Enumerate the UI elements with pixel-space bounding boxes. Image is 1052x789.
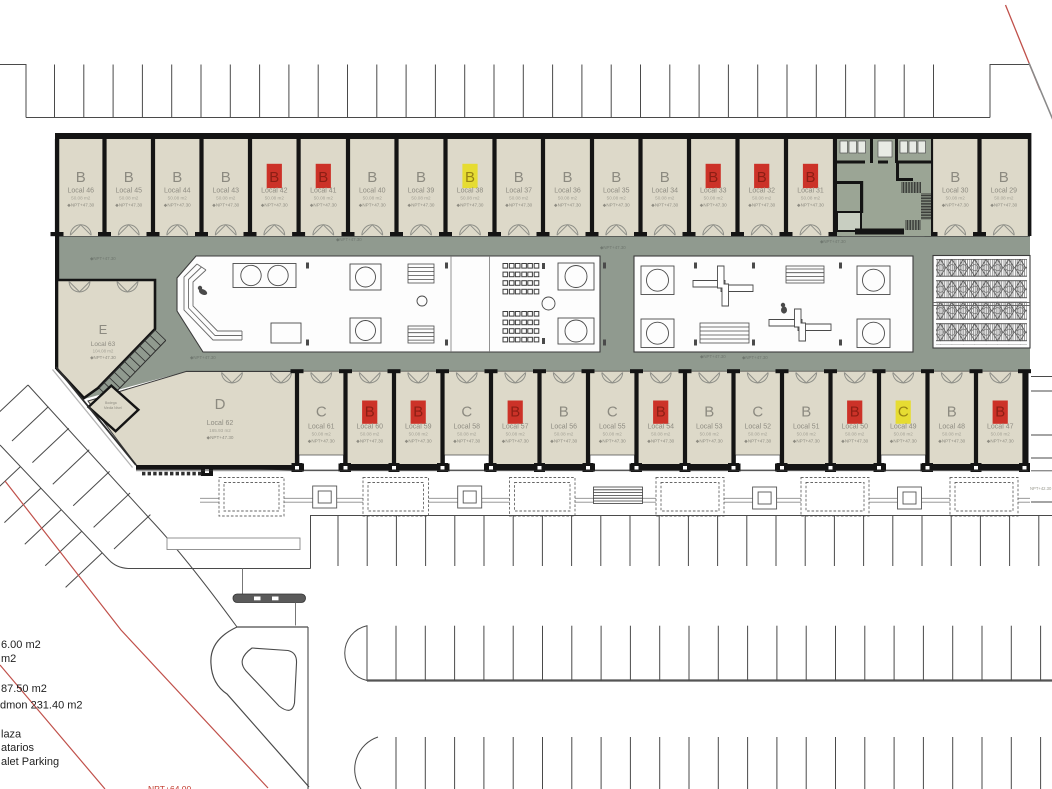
svg-text:B: B	[850, 404, 860, 421]
svg-text:◆NPT+47.30: ◆NPT+47.30	[554, 203, 581, 208]
svg-text:50.08 m2: 50.08 m2	[991, 432, 1011, 437]
svg-text:B: B	[318, 169, 328, 186]
svg-text:50.08 m2: 50.08 m2	[265, 196, 285, 201]
svg-text:◆NPT+47.30: ◆NPT+47.30	[820, 239, 846, 244]
svg-text:B: B	[365, 404, 375, 421]
svg-text:◆NPT+47.30: ◆NPT+47.30	[356, 439, 383, 444]
svg-text:104.08 m2: 104.08 m2	[93, 349, 114, 354]
svg-text:C: C	[316, 404, 327, 421]
svg-text:50.08 m2: 50.08 m2	[71, 196, 91, 201]
svg-text:Local 52: Local 52	[745, 424, 772, 431]
svg-text:B: B	[656, 404, 666, 421]
svg-text:Local 58: Local 58	[454, 424, 481, 431]
svg-text:B: B	[757, 169, 767, 186]
svg-text:Local 53: Local 53	[696, 424, 723, 431]
svg-text:◆NPT+47.30: ◆NPT+47.30	[261, 203, 288, 208]
svg-text:◆NPT+47.30: ◆NPT+47.30	[700, 354, 726, 359]
svg-text:B: B	[221, 169, 231, 186]
svg-text:50.08 m2: 50.08 m2	[168, 196, 188, 201]
svg-text:◆NPT+47.30: ◆NPT+47.30	[336, 237, 362, 242]
svg-text:Local 29: Local 29	[991, 188, 1018, 195]
svg-text:B: B	[413, 404, 423, 421]
svg-text:◆NPT+47.30: ◆NPT+47.30	[938, 439, 965, 444]
svg-text:B: B	[514, 169, 524, 186]
svg-text:◆NPT+47.30: ◆NPT+47.30	[797, 203, 824, 208]
svg-text:◆NPT+47.30: ◆NPT+47.30	[457, 203, 484, 208]
svg-text:50.08 m2: 50.08 m2	[409, 432, 429, 437]
svg-text:◆NPT+47.30: ◆NPT+47.30	[742, 355, 768, 360]
svg-text:B: B	[950, 169, 960, 186]
svg-text:Local 32: Local 32	[749, 188, 776, 195]
svg-text:Local 63: Local 63	[91, 341, 116, 348]
svg-text:◆NPT+47.30: ◆NPT+47.30	[310, 203, 337, 208]
svg-text:◆NPT+47.30: ◆NPT+47.30	[550, 439, 577, 444]
svg-text:50.08 m2: 50.08 m2	[314, 196, 334, 201]
svg-text:◆NPT+47.30: ◆NPT+47.30	[453, 439, 480, 444]
svg-text:165.93 m2: 165.93 m2	[209, 428, 231, 433]
svg-text:B: B	[999, 169, 1009, 186]
svg-text:◆NPT+47.30: ◆NPT+47.30	[748, 203, 775, 208]
svg-text:50.08 m2: 50.08 m2	[942, 432, 962, 437]
svg-text:B: B	[124, 169, 134, 186]
svg-text:E: E	[99, 322, 108, 337]
svg-text:Local 44: Local 44	[164, 188, 191, 195]
svg-text:Local 39: Local 39	[408, 188, 435, 195]
svg-text:50.08 m2: 50.08 m2	[457, 432, 477, 437]
svg-text:Local 46: Local 46	[68, 188, 95, 195]
svg-text:◆NPT+47.30: ◆NPT+47.30	[359, 203, 386, 208]
svg-text:◆NPT+47.30: ◆NPT+47.30	[990, 203, 1017, 208]
svg-text:B: B	[801, 404, 811, 421]
svg-text:Local 34: Local 34	[652, 188, 679, 195]
svg-text:Local 54: Local 54	[648, 424, 675, 431]
svg-text:6.00 m2: 6.00 m2	[1, 639, 41, 651]
svg-text:◆NPT+47.30: ◆NPT+47.30	[987, 439, 1014, 444]
svg-text:50.08 m2: 50.08 m2	[655, 196, 675, 201]
svg-text:Local 35: Local 35	[603, 188, 630, 195]
svg-text:Local 51: Local 51	[793, 424, 820, 431]
svg-text:50.08 m2: 50.08 m2	[558, 196, 578, 201]
svg-text:Local 60: Local 60	[357, 424, 384, 431]
svg-text:Local 55: Local 55	[599, 424, 626, 431]
svg-text:◆NPT+47.30: ◆NPT+47.30	[308, 439, 335, 444]
svg-text:Local 33: Local 33	[700, 188, 727, 195]
svg-text:◆NPT+47.30: ◆NPT+47.30	[408, 203, 435, 208]
svg-text:87.50 m2: 87.50 m2	[1, 683, 47, 695]
svg-text:Local 45: Local 45	[116, 188, 143, 195]
svg-text:◆NPT+47.30: ◆NPT+47.30	[651, 203, 678, 208]
svg-text:Local 59: Local 59	[405, 424, 432, 431]
svg-text:Local 30: Local 30	[942, 188, 969, 195]
svg-text:50.08 m2: 50.08 m2	[845, 432, 865, 437]
svg-text:◆NPT+47.30: ◆NPT+47.30	[90, 256, 116, 261]
svg-text:◆NPT+47.30: ◆NPT+47.30	[164, 203, 191, 208]
svg-text:Local 50: Local 50	[842, 424, 869, 431]
svg-text:◆NPT+47.30: ◆NPT+47.30	[942, 203, 969, 208]
svg-text:Local 38: Local 38	[457, 188, 484, 195]
svg-text:Local 47: Local 47	[987, 424, 1014, 431]
svg-text:B: B	[704, 404, 714, 421]
svg-text:Local 42: Local 42	[261, 188, 288, 195]
svg-text:Local 43: Local 43	[213, 188, 240, 195]
svg-text:B: B	[611, 169, 621, 186]
svg-text:B: B	[416, 169, 426, 186]
svg-text:◆NPT+47.30: ◆NPT+47.30	[841, 439, 868, 444]
svg-text:50.08 m2: 50.08 m2	[700, 432, 720, 437]
svg-text:Local 40: Local 40	[359, 188, 386, 195]
svg-text:50.08 m2: 50.08 m2	[651, 432, 671, 437]
svg-text:◆NPT+47.30: ◆NPT+47.30	[600, 245, 626, 250]
svg-text:◆NPT+47.30: ◆NPT+47.30	[405, 439, 432, 444]
svg-text:Bodega: Bodega	[105, 401, 117, 405]
svg-text:50.08 m2: 50.08 m2	[603, 432, 623, 437]
svg-text:Local 41: Local 41	[310, 188, 337, 195]
svg-text:◆NPT+47.30: ◆NPT+47.30	[793, 439, 820, 444]
svg-text:50.08 m2: 50.08 m2	[801, 196, 821, 201]
svg-text:B: B	[559, 404, 569, 421]
svg-text:◆NPT+47.30: ◆NPT+47.30	[700, 203, 727, 208]
svg-text:50.08 m2: 50.08 m2	[894, 432, 914, 437]
svg-text:Local 61: Local 61	[308, 424, 335, 431]
svg-text:50.08 m2: 50.08 m2	[509, 196, 529, 201]
svg-text:NPT+64.00: NPT+64.00	[148, 784, 192, 789]
svg-text:C: C	[898, 404, 909, 421]
svg-text:dmon 231.40 m2: dmon 231.40 m2	[0, 700, 83, 712]
svg-text:50.08 m2: 50.08 m2	[752, 196, 772, 201]
svg-text:◆NPT+47.30: ◆NPT+47.30	[696, 439, 723, 444]
svg-text:laza: laza	[1, 729, 22, 741]
svg-text:50.08 m2: 50.08 m2	[363, 196, 383, 201]
svg-text:NPT+42.30: NPT+42.30	[1030, 486, 1052, 491]
svg-text:B: B	[562, 169, 572, 186]
svg-text:B: B	[76, 169, 86, 186]
svg-text:◆NPT+47.30: ◆NPT+47.30	[212, 203, 239, 208]
svg-text:Local 36: Local 36	[554, 188, 581, 195]
svg-text:Local 37: Local 37	[506, 188, 533, 195]
svg-text:◆NPT+47.30: ◆NPT+47.30	[647, 439, 674, 444]
svg-text:50.08 m2: 50.08 m2	[360, 432, 380, 437]
svg-text:◆NPT+47.30: ◆NPT+47.30	[505, 203, 532, 208]
svg-text:◆NPT+47.30: ◆NPT+47.30	[890, 439, 917, 444]
svg-text:◆NPT+47.30: ◆NPT+47.30	[603, 203, 630, 208]
svg-text:B: B	[269, 169, 279, 186]
svg-text:50.08 m2: 50.08 m2	[411, 196, 431, 201]
svg-text:Local 49: Local 49	[890, 424, 917, 431]
svg-text:B: B	[660, 169, 670, 186]
svg-text:Local 57: Local 57	[502, 424, 529, 431]
svg-text:B: B	[465, 169, 475, 186]
svg-text:B: B	[172, 169, 182, 186]
svg-text:50.08 m2: 50.08 m2	[946, 196, 966, 201]
svg-text:50.08 m2: 50.08 m2	[119, 196, 139, 201]
svg-text:Local 56: Local 56	[551, 424, 578, 431]
svg-text:◆NPT+47.30: ◆NPT+47.30	[599, 439, 626, 444]
svg-text:B: B	[947, 404, 957, 421]
svg-text:B: B	[995, 404, 1005, 421]
svg-text:50.08 m2: 50.08 m2	[554, 432, 574, 437]
svg-text:◆NPT+47.30: ◆NPT+47.30	[744, 439, 771, 444]
svg-text:m2: m2	[1, 653, 16, 665]
svg-text:◆NPT+47.30: ◆NPT+47.30	[207, 435, 234, 440]
svg-text:50.08 m2: 50.08 m2	[216, 196, 236, 201]
svg-text:50.08 m2: 50.08 m2	[797, 432, 817, 437]
svg-text:◆NPT+47.30: ◆NPT+47.30	[90, 355, 116, 360]
svg-text:50.08 m2: 50.08 m2	[704, 196, 724, 201]
svg-text:50.08 m2: 50.08 m2	[607, 196, 627, 201]
svg-text:C: C	[607, 404, 618, 421]
svg-text:50.08 m2: 50.08 m2	[312, 432, 332, 437]
svg-text:Local 48: Local 48	[939, 424, 966, 431]
svg-text:alet Parking: alet Parking	[1, 756, 59, 768]
svg-text:50.08 m2: 50.08 m2	[994, 196, 1014, 201]
svg-text:Local 31: Local 31	[797, 188, 824, 195]
svg-text:C: C	[461, 404, 472, 421]
svg-text:atarios: atarios	[1, 742, 35, 754]
svg-text:50.08 m2: 50.08 m2	[460, 196, 480, 201]
svg-text:◆NPT+47.30: ◆NPT+47.30	[115, 203, 142, 208]
svg-text:50.08 m2: 50.08 m2	[506, 432, 526, 437]
svg-text:B: B	[510, 404, 520, 421]
svg-text:C: C	[752, 404, 763, 421]
svg-text:50.08 m2: 50.08 m2	[748, 432, 768, 437]
svg-text:Media Nivel: Media Nivel	[104, 406, 122, 410]
svg-text:B: B	[708, 169, 718, 186]
svg-text:B: B	[805, 169, 815, 186]
svg-text:D: D	[215, 396, 226, 413]
svg-text:◆NPT+47.30: ◆NPT+47.30	[67, 203, 94, 208]
svg-text:B: B	[367, 169, 377, 186]
svg-text:Local 62: Local 62	[207, 420, 234, 427]
svg-text:◆NPT+47.30: ◆NPT+47.30	[502, 439, 529, 444]
svg-text:◆NPT+47.30: ◆NPT+47.30	[190, 355, 216, 360]
